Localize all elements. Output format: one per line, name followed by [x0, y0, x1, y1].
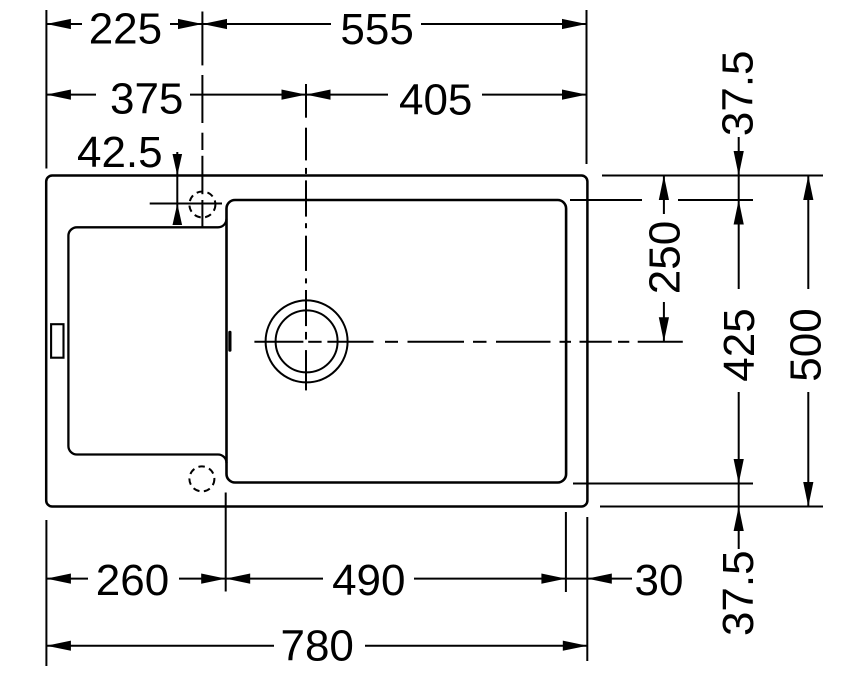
svg-text:37.5: 37.5 — [714, 550, 763, 636]
svg-text:425: 425 — [715, 308, 764, 381]
svg-text:250: 250 — [640, 221, 689, 294]
svg-text:225: 225 — [89, 4, 162, 53]
svg-text:37.5: 37.5 — [713, 50, 762, 136]
svg-text:42.5: 42.5 — [77, 128, 163, 177]
svg-text:30: 30 — [635, 556, 684, 605]
svg-text:555: 555 — [340, 5, 413, 54]
svg-text:405: 405 — [399, 75, 472, 124]
svg-text:780: 780 — [280, 622, 353, 671]
svg-text:260: 260 — [96, 556, 169, 605]
svg-text:490: 490 — [332, 556, 405, 605]
svg-text:375: 375 — [110, 75, 183, 124]
svg-text:500: 500 — [781, 308, 830, 381]
